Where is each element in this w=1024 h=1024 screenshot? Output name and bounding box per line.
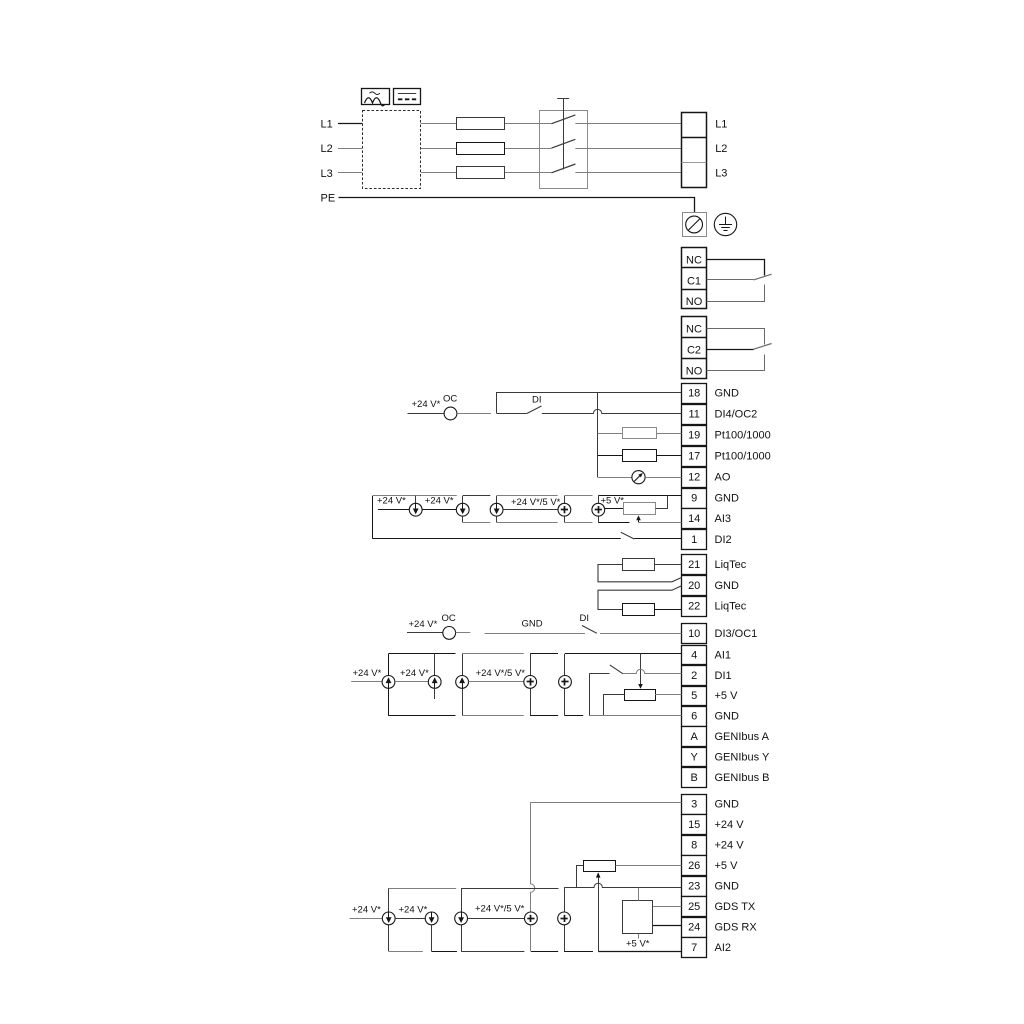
svg-text:17: 17 <box>688 450 700 462</box>
svg-text:GND: GND <box>715 580 740 592</box>
svg-text:+24 V*/5 V*: +24 V*/5 V* <box>511 497 561 508</box>
svg-text:+24 V*: +24 V* <box>412 399 441 410</box>
svg-text:OC: OC <box>443 394 457 405</box>
svg-text:GND: GND <box>522 619 543 630</box>
svg-text:Pt100/1000: Pt100/1000 <box>715 450 771 462</box>
svg-text:24: 24 <box>688 922 700 934</box>
svg-text:+5 V*: +5 V* <box>626 938 650 949</box>
svg-text:GND: GND <box>715 492 740 504</box>
svg-text:+24 V*/5 V*: +24 V*/5 V* <box>476 668 526 679</box>
svg-text:DI4/OC2: DI4/OC2 <box>715 409 758 421</box>
svg-text:+24 V*: +24 V* <box>377 496 406 507</box>
svg-text:3: 3 <box>691 798 697 810</box>
svg-text:L2: L2 <box>321 143 333 155</box>
svg-text:Y: Y <box>691 751 699 763</box>
svg-text:NC: NC <box>686 324 702 336</box>
svg-text:C2: C2 <box>687 345 701 357</box>
svg-text:7: 7 <box>691 942 697 954</box>
svg-text:20: 20 <box>688 580 700 592</box>
svg-text:25: 25 <box>688 901 700 913</box>
svg-text:B: B <box>691 772 698 784</box>
svg-text:NC: NC <box>686 254 702 266</box>
svg-text:4: 4 <box>691 649 697 661</box>
svg-text:AI3: AI3 <box>715 513 732 525</box>
svg-text:+24 V*: +24 V* <box>425 496 454 507</box>
svg-text:GDS TX: GDS TX <box>715 901 756 913</box>
svg-text:14: 14 <box>688 513 700 525</box>
svg-text:GENIbus A: GENIbus A <box>715 731 770 743</box>
svg-text:22: 22 <box>688 601 700 613</box>
svg-text:+5 V: +5 V <box>715 860 739 872</box>
svg-text:L2: L2 <box>715 143 727 155</box>
svg-text:12: 12 <box>688 471 700 483</box>
svg-text:NO: NO <box>686 366 703 378</box>
svg-text:19: 19 <box>688 429 700 441</box>
svg-text:15: 15 <box>688 819 700 831</box>
svg-text:+24 V: +24 V <box>715 839 745 851</box>
svg-text:GND: GND <box>715 798 740 810</box>
svg-text:9: 9 <box>691 492 697 504</box>
svg-text:8: 8 <box>691 839 697 851</box>
svg-text:26: 26 <box>688 860 700 872</box>
svg-text:23: 23 <box>688 880 700 892</box>
svg-text:AO: AO <box>715 471 731 483</box>
svg-text:GND: GND <box>715 388 740 400</box>
svg-text:GENIbus B: GENIbus B <box>715 772 770 784</box>
svg-text:DI3/OC1: DI3/OC1 <box>715 628 758 640</box>
svg-text:OC: OC <box>442 613 456 624</box>
svg-text:L1: L1 <box>321 119 333 131</box>
svg-text:L3: L3 <box>715 168 727 180</box>
svg-text:+5 V: +5 V <box>715 690 739 702</box>
svg-text:6: 6 <box>691 711 697 723</box>
svg-text:GENIbus Y: GENIbus Y <box>715 751 770 763</box>
svg-text:A: A <box>691 731 699 743</box>
svg-text:PE: PE <box>321 192 336 204</box>
svg-text:1: 1 <box>691 534 697 546</box>
svg-text:+24 V: +24 V <box>715 819 745 831</box>
svg-text:LiqTec: LiqTec <box>715 601 747 613</box>
svg-text:+24 V*: +24 V* <box>353 668 382 679</box>
svg-text:AI2: AI2 <box>715 942 732 954</box>
svg-text:21: 21 <box>688 559 700 571</box>
svg-text:Pt100/1000: Pt100/1000 <box>715 429 771 441</box>
svg-text:5: 5 <box>691 690 697 702</box>
svg-text:GND: GND <box>715 711 740 723</box>
svg-text:+24 V*: +24 V* <box>400 668 429 679</box>
svg-text:18: 18 <box>688 388 700 400</box>
svg-text:GDS RX: GDS RX <box>715 922 758 934</box>
svg-text:AI1: AI1 <box>715 649 732 661</box>
svg-text:NO: NO <box>686 296 703 308</box>
svg-text:DI2: DI2 <box>715 534 732 546</box>
svg-text:DI1: DI1 <box>715 670 732 682</box>
svg-text:L3: L3 <box>321 168 333 180</box>
svg-text:GND: GND <box>715 880 740 892</box>
svg-text:+24 V*: +24 V* <box>399 904 428 915</box>
svg-text:11: 11 <box>688 409 699 421</box>
svg-text:LiqTec: LiqTec <box>715 559 747 571</box>
svg-text:+24 V*: +24 V* <box>352 904 381 915</box>
svg-text:+24 V*/5 V*: +24 V*/5 V* <box>475 904 525 915</box>
svg-text:2: 2 <box>691 670 697 682</box>
svg-text:DI: DI <box>580 613 590 624</box>
svg-text:+5 V*: +5 V* <box>601 496 625 507</box>
svg-text:10: 10 <box>688 628 700 640</box>
svg-text:C1: C1 <box>687 275 701 287</box>
svg-text:DI: DI <box>532 395 542 406</box>
svg-text:+24 V*: +24 V* <box>409 619 438 630</box>
svg-text:L1: L1 <box>715 119 727 131</box>
